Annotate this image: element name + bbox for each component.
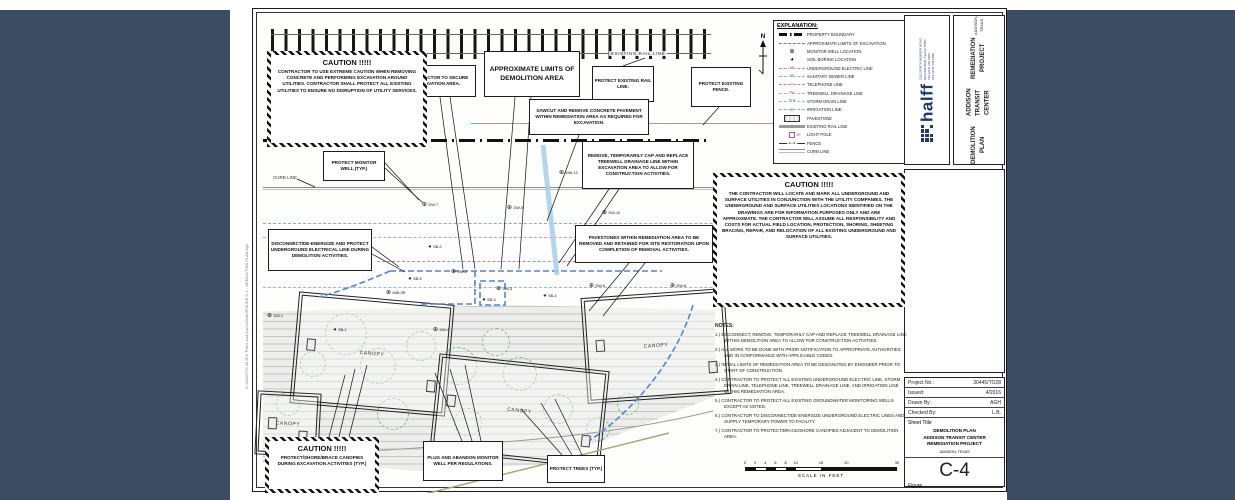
explanation-legend: EXPLANATION: PROPERTY BOUNDARYAPPROXIMAT… [773,20,905,164]
info-value: L.B. [992,410,1001,416]
legend-item: ◄─►FENCE [777,139,901,147]
info-value: AGH [990,400,1001,406]
legend-item-label: PROPERTY BOUNDARY [807,32,855,37]
scale-segment [746,468,756,470]
callout-protect-trees: PROTECT TREES (TYP.) [547,455,605,483]
well-sb-5: ◕SB-5 [408,276,422,282]
info-label: Checked By: [908,410,936,416]
callout-plug-abandon: PLUG AND ABANDON MONITOR WELL PER REGULA… [423,441,503,481]
well-dw-4: ⊕DW-4 [433,327,449,333]
well-label: MW-3R [393,291,406,295]
scale-segments [745,467,897,471]
legend-line [779,43,805,44]
plan-area: EXISTING RAIL LINE CURB LINE CANOPYCANOP… [257,13,905,489]
legend-symbol-fence: ◄─► [777,143,807,144]
well-sb-3: ◕SB-3 [482,297,496,303]
well-label: SB-5 [413,277,421,281]
monitor-well-icon: ⊕ [670,283,675,289]
legend-item: UEUNDERGROUND ELECTRIC LINE [777,64,901,72]
monitor-well-icon: ⊕ [602,210,607,216]
info-label: Issued: [908,390,924,396]
legend-line-tag: UE [789,66,794,70]
screenshot-root: X:\30445\TO 28 ATC Plans and Specs\Draft… [0,0,1235,500]
well-dw-6: ⊕DW-6 [589,283,605,289]
canopy-label: CANOPY [359,350,384,358]
scale-segment [821,468,896,470]
scale-tick: 10 [794,461,798,465]
sheet-title-lines: DEMOLITION PLANADDISON TRANSIT CENTERREM… [905,428,1004,448]
logo-box: halff 1201 NORTH BOWSER ROADRICHARDSON, … [904,15,950,165]
legend-symbol-pole: LP [777,132,807,138]
legend-item-label: MONITOR WELL LOCATION [807,49,861,54]
info-box: Project No.:30445/TO28Issued:4/2016Drawn… [904,377,1005,487]
soil-boring-icon: ◕ [482,297,486,303]
callout-disconnect-electric: DISCONNECT/DE-ENERGIZE AND PROTECT UNDER… [268,229,372,271]
well-dw-7: ⊕DW-7 [422,202,438,208]
well-dw-3: ⊕DW-3 [496,286,512,292]
sheet-location: ADDISON, TEXAS [905,450,1004,454]
callout-protect-rail: PROTECT EXISTING RAIL LINE. [592,66,654,102]
legend-item-label: TREEWELL DRAINAGE LINE [807,91,863,96]
well-label: DW-9 [514,206,524,210]
well-label: SB-2 [433,245,441,249]
info-row: Checked By:L.B. [905,408,1004,418]
caution-title: CAUTION !!!!! [721,180,897,189]
caution-title: CAUTION !!!!! [275,58,419,67]
legend-item-label: UNDERGROUND ELECTRIC LINE [807,66,873,71]
legend-symbol-pave [777,115,807,122]
legend-item: EXISTING RAIL LINE [777,122,901,130]
legend-item-label: CURB LINE [807,149,829,154]
legend-symbol-tw: TW [777,93,807,94]
caution-body: THE CONTRACTOR WILL LOCATE AND MARK ALL … [721,191,897,241]
legend-title: EXPLANATION: [777,23,901,29]
drawing-sheet: X:\30445\TO 28 ATC Plans and Specs\Draft… [252,8,1007,492]
scale-tick: 15 [819,461,823,465]
scale-tick: 6 [774,461,776,465]
tree [482,328,510,356]
scale-segment [766,468,776,470]
canopy-label: CANOPY [276,420,301,427]
legend-item-label: APPROXIMATE LIMITS OF EXCAVATION [807,41,886,46]
legend-item-label: EXISTING RAIL LINE [807,124,847,129]
sheet-title-line: REMEDIATION PROJECT [905,441,1004,448]
monitor-well-icon: ⊕ [422,202,427,208]
legend-line-tag: IR [790,108,794,112]
soil-boring-icon: ◕ [333,327,337,333]
info-label: Drawn By: [908,400,931,406]
well-dw-2: ⊕DW-2 [451,269,467,275]
info-value: 4/2016 [986,390,1001,396]
notes-list: 1.) DISCONNECT, REMOVE, TEMPORARILY CAP … [715,332,907,440]
legend-item: STMSTORM DRAIN LINE [777,97,901,105]
legend-item-label: FENCE [807,141,821,146]
project-title-line: REMEDIATION PROJECT [970,37,988,79]
canopy-label: CANOPY [643,342,668,350]
project-title-line: ADDISON TRANSIT CENTER [966,79,993,126]
legend-item: CURB LINE [777,147,901,155]
monitor-well-icon: ⊕ [433,327,438,333]
caution-box-top-left: CAUTION !!!!! CONTRACTOR TO USE EXTREME … [267,51,427,147]
scale-bar: 0246810152030 SCALE IN FEET [745,461,897,478]
north-label: N [755,33,771,40]
project-title-line: DEMOLITION PLAN [970,126,988,164]
legend-item: APPROXIMATE LIMITS OF EXCAVATION [777,39,901,47]
halff-address-line: FAX (214) 739-0095 [931,38,935,80]
note-item: 1.) DISCONNECT, REMOVE, TEMPORARILY CAP … [715,332,907,344]
legend-symbol-curb [777,149,807,153]
scale-tick: 0 [744,461,746,465]
well-label: DW-3 [503,287,513,291]
legend-item-label: IRRIGATION LINE [807,107,842,112]
legend-line [779,125,805,129]
well-label: DW-6 [596,284,606,288]
left-backdrop [0,10,230,500]
callout-pavestones: PAVESTONES WITHIN REMEDIATION AREA TO BE… [575,225,713,263]
well-label: DW-7 [429,203,439,207]
caution-body: PROTECT/SHORE/BRACE CANOPIES DURING EXCA… [273,455,371,467]
sheet-title-label: Sheet Title [905,418,1004,427]
scale-tick: 20 [844,461,848,465]
legend-symbol-ue: UE [777,68,807,69]
soil-boring-icon: ◕ [428,244,432,250]
scale-tick: 2 [754,461,756,465]
logo-vertical: halff 1201 NORTH BOWSER ROADRICHARDSON, … [905,16,949,164]
info-row: Project No.:30445/TO28 [905,378,1004,388]
halff-address: 1201 NORTH BOWSER ROADRICHARDSON, TEXAS … [919,38,936,80]
legend-item: ⊕MONITOR WELL LOCATION [777,47,901,55]
monitor-well-icon: ⊕ [507,205,512,211]
sheet-number: C-4 [905,457,1004,482]
monitor-well-icon: ⊕ [267,313,272,319]
legend-item-label: SOIL BORING LOCATION [807,57,856,62]
legend-item-label: SANITARY SEWER LINE [807,74,854,79]
note-item: 7.) CONTRACTOR TO PROTECT/BRACE/SHORE CA… [715,428,907,440]
well-label: SB-4 [548,294,556,298]
legend-item: SSSANITARY SEWER LINE [777,72,901,80]
well-dw-10: ⊕DW-10 [602,210,620,216]
legend-item-label: LIGHT POLE [807,132,832,137]
scale-tick: 4 [764,461,766,465]
legend-symbol-rail [777,125,807,129]
right-backdrop [1007,10,1235,500]
note-item: 4.) CONTRACTOR TO PROTECT ALL EXISTING U… [715,377,907,395]
well-label: MW-12 [566,171,578,175]
legend-symbol-mw: ⊕ [777,48,807,55]
monitor-well-icon: ⊕ [559,170,564,176]
well-dw-8: ⊕DW-8 [670,283,686,289]
legend-line-tag: STM [788,99,796,103]
legend-symbol-property [777,33,807,36]
info-value: 30445/TO28 [973,380,1001,386]
halff-logo-mark [921,125,934,142]
legend-symbol-excav [777,43,807,44]
caution-body: CONTRACTOR TO USE EXTREME CAUTION WHEN R… [275,69,419,94]
legend-item: PROPERTY BOUNDARY [777,31,901,39]
note-item: 3.) INITIAL LIMITS OF REMEDIATION AREA T… [715,362,907,374]
caution-box-right: CAUTION !!!!! THE CONTRACTOR WILL LOCATE… [713,173,905,307]
callout-remove-treewell: REMOVE, TEMPORARILY CAP AND REPLACE TREE… [582,141,694,189]
project-title-box: DEMOLITION PLANADDISON TRANSIT CENTERREM… [953,15,1005,165]
well-label: SB-1 [338,328,346,332]
legend-item-label: PAVESTONE [807,116,832,121]
well-sb-4: ◕SB-4 [543,293,557,299]
legend-symbol-stm: STM [777,101,807,102]
info-row: Drawn By:AGH [905,398,1004,408]
north-arrow-glyph [756,40,770,76]
legend-item: IRIRRIGATION LINE [777,106,901,114]
soil-boring-icon: ◕ [408,276,412,282]
legend-item-label: TELEPHONE LINE [807,82,843,87]
canopy-label: CANOPY [507,407,532,416]
curb-line-label: CURB LINE [271,175,299,180]
callout-protect-fence: PROTECT EXISTING FENCE. [691,67,751,107]
legend-item: LPLIGHT POLE [777,131,901,139]
project-location: ADDISON, TEXAS [973,16,985,35]
well-label: DW-2 [458,270,468,274]
well-mw-3r: ⊕MW-3R [386,290,405,296]
well-label: DW-1 [274,314,284,318]
note-item: 6.) CONTRACTOR TO DISCONNECT/DE-ENERGIZE… [715,413,907,425]
note-item: 5.) CONTRACTOR TO PROTECT ALL EXISTING G… [715,398,907,410]
callout-demolition-limits: APPROXIMATE LIMITS OF DEMOLITION AREA [484,51,580,97]
north-arrow: N [755,33,771,79]
note-item: 2.) ALL WORK TO BE DONE WITH PRIOR NOTIF… [715,347,907,359]
legend-line [779,33,805,36]
figure-label: Figure [905,482,1004,490]
legend-item: ◕SOIL BORING LOCATION [777,56,901,64]
legend-item: TTELEPHONE LINE [777,81,901,89]
scale-label: SCALE IN FEET [745,473,897,478]
legend-symbol-irr: IR [777,109,807,110]
legend-item: TWTREEWELL DRAINAGE LINE [777,89,901,97]
well-dw-1: ⊕DW-1 [267,313,283,319]
well-sb-2: ◕SB-2 [428,244,442,250]
soil-boring-icon: ◕ [543,293,547,299]
treewell-blue-line [543,145,557,275]
sheet-title-line: DEMOLITION PLAN [905,428,1004,435]
legend-line-tag: SS [789,74,794,78]
well-label: SB-3 [487,298,495,302]
well-mw-12: ⊕MW-12 [559,170,578,176]
legend-symbol-sb: ◕ [777,57,807,63]
rail-line [271,34,711,35]
legend-item-label: STORM DRAIN LINE [807,99,847,104]
legend-symbol-tel: T [777,84,807,85]
well-label: DW-10 [609,211,621,215]
legend-line [779,149,805,153]
well-dw-9: ⊕DW-9 [507,205,523,211]
legend-symbol-ss: SS [777,76,807,77]
monitor-well-icon: ⊕ [496,286,501,292]
scale-segment [786,468,796,470]
info-label: Project No.: [908,380,934,386]
legend-line-tag: TW [789,91,795,95]
info-row: Issued:4/2016 [905,388,1004,398]
sheet-title-line: ADDISON TRANSIT CENTER [905,435,1004,442]
callout-sawcut: SAWCUT AND REMOVE CONCRETE PAVEMENT WITH… [529,99,649,135]
monitor-well-icon: ⊕ [589,283,594,289]
monitor-well-icon: ⊕ [451,269,456,275]
monitor-well-icon: ⊕ [386,290,391,296]
callout-protect-monitor-well: PROTECT MONITOR WELL (TYP.) [323,151,385,181]
caution-title: CAUTION !!!!! [273,444,371,453]
halff-logo-text: halff [919,83,936,121]
notes-title: NOTES: [715,323,907,329]
scale-tick: 30 [895,461,899,465]
legend-item: PAVESTONE [777,114,901,122]
canopy-structure: CANOPY [584,291,729,400]
well-sb-1: ◕SB-1 [333,327,347,333]
project-title: DEMOLITION PLANADDISON TRANSIT CENTERREM… [954,16,1004,164]
well-label: DW-8 [677,284,687,288]
notes-block: NOTES: 1.) DISCONNECT, REMOVE, TEMPORARI… [715,323,907,465]
file-path-note: X:\30445\TO 28 ATC Plans and Specs\Draft… [245,244,249,389]
well-label: DW-4 [440,328,450,332]
revision-box [904,169,1005,373]
info-rows: Project No.:30445/TO28Issued:4/2016Drawn… [905,378,1004,418]
legend-line-tag: T [791,83,794,87]
caution-box-bottom-left: CAUTION !!!!! PROTECT/SHORE/BRACE CANOPI… [265,437,379,493]
legend-rows: PROPERTY BOUNDARYAPPROXIMATE LIMITS OF E… [777,31,901,156]
existing-rail-line-label: EXISTING RAIL LINE [609,51,667,56]
scale-tick: 8 [784,461,786,465]
